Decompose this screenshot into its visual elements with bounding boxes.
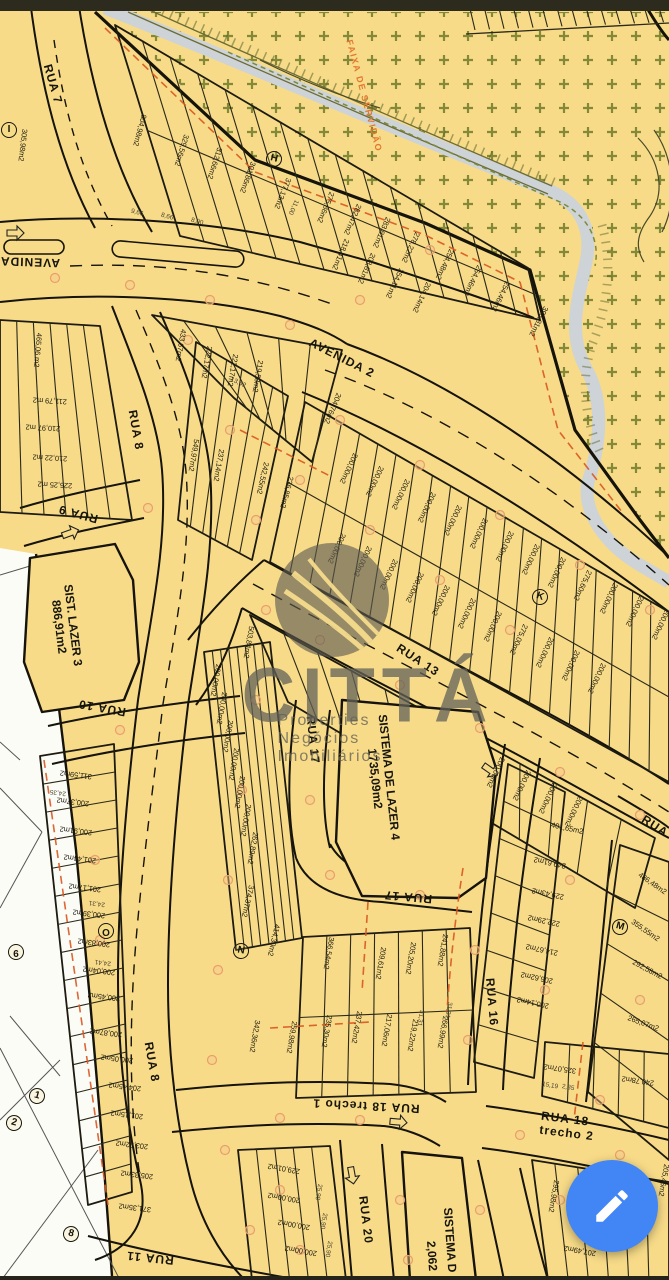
pencil-icon [591,1185,633,1227]
map-base-drawing [0,0,669,1280]
bottom-bar [0,1276,669,1280]
edit-fab[interactable] [566,1160,658,1252]
top-bar [0,0,669,11]
map-viewport[interactable]: R​UA 7AVENIDAAVENIDA 2RUA 8RUA 9RUA 10RU… [0,0,669,1280]
